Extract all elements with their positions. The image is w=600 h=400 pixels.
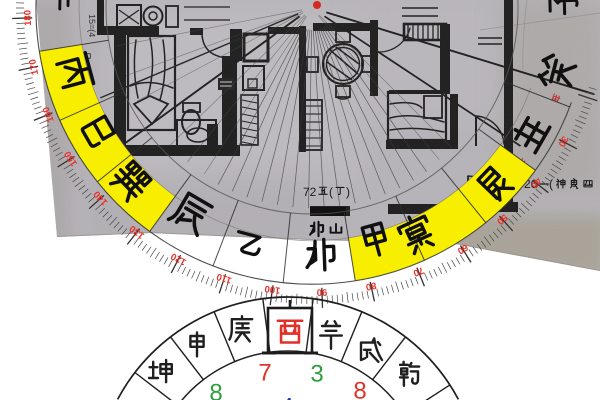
svg-text:4: 4 [280,394,293,400]
svg-text:15=(4: 15=(4 [87,14,97,37]
svg-text:7: 7 [258,360,271,387]
svg-text:100: 100 [264,283,281,296]
svg-text:72: 72 [303,185,317,199]
svg-text:8: 8 [209,380,222,400]
svg-text:90: 90 [316,286,327,297]
svg-text:3: 3 [310,361,323,388]
svg-text:180: 180 [22,10,34,26]
svg-text:8: 8 [353,378,366,400]
svg-text:(: ( [549,177,553,191]
svg-text:(: ( [329,185,333,199]
svg-text:): ) [346,185,350,199]
svg-text:80: 80 [365,279,378,292]
